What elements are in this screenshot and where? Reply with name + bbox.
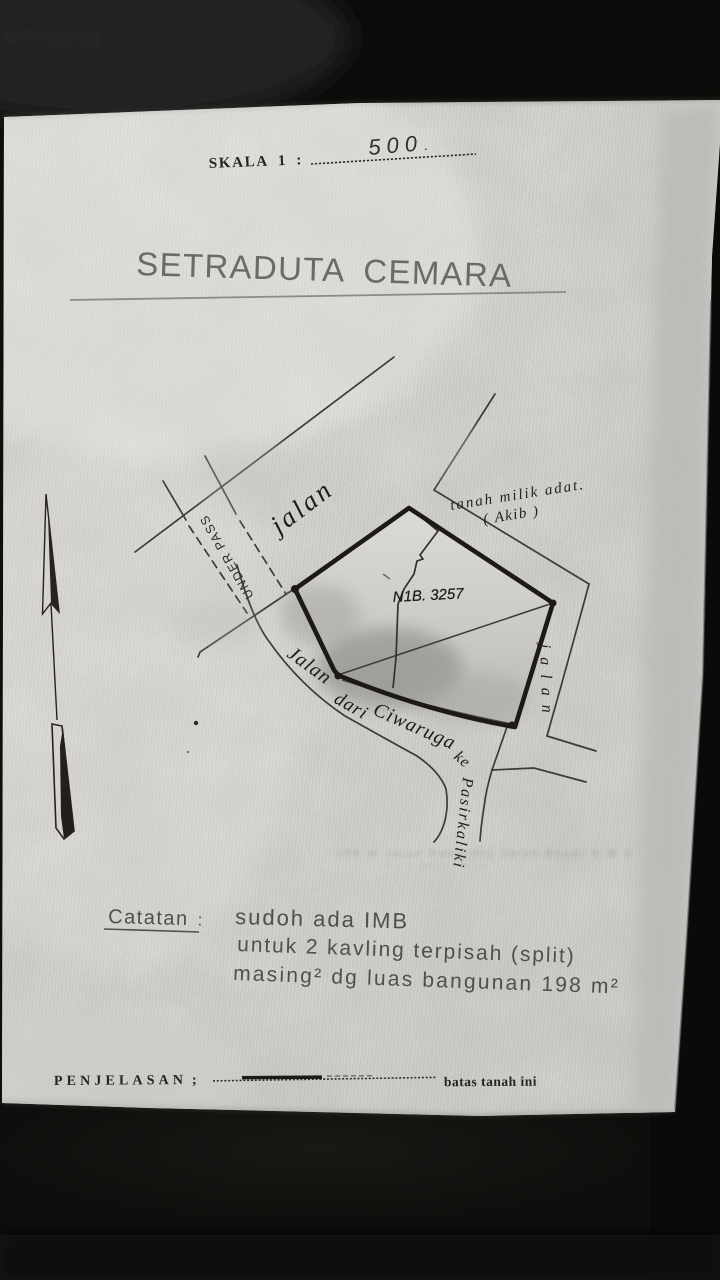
svg-text:sudoh ada IMB: sudoh ada IMB bbox=[235, 904, 410, 934]
svg-text:PENJELASAN: PENJELASAN bbox=[54, 1073, 185, 1089]
svg-text:· , · · · , · · , · ·: · , · · · , · · , · · bbox=[225, 1092, 344, 1102]
svg-text:d k m Besar rm 11: d k m Besar rm 11 bbox=[385, 860, 488, 870]
svg-text:jalan: jalan bbox=[536, 642, 556, 722]
svg-text:amsung: amsung bbox=[2, 22, 103, 50]
svg-text:;: ; bbox=[192, 1073, 199, 1088]
svg-text:batas tanah ini: batas tanah ini bbox=[444, 1074, 537, 1090]
svg-text:156 m Jalan Rahu dss Jalan Be: 156 m Jalan Rahu dss Jalan Besar K M K bbox=[336, 848, 635, 860]
